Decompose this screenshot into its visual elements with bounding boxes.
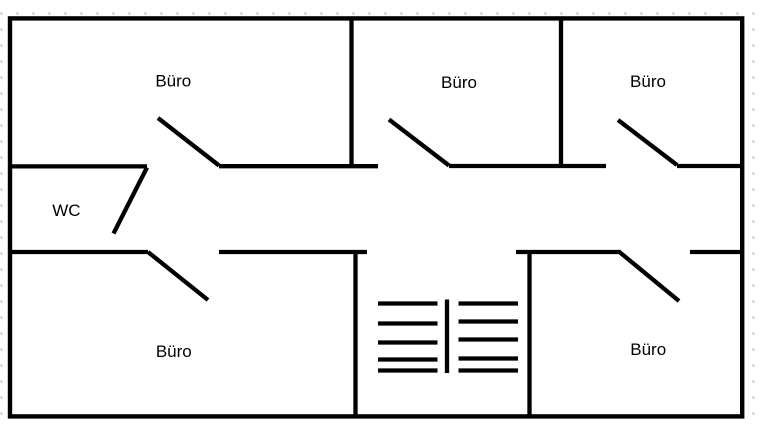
svg-text:Büro: Büro xyxy=(630,340,666,359)
svg-text:Büro: Büro xyxy=(155,72,191,91)
svg-text:Büro: Büro xyxy=(156,342,192,361)
svg-text:Büro: Büro xyxy=(441,73,477,92)
svg-text:WC: WC xyxy=(52,201,80,220)
svg-text:Büro: Büro xyxy=(630,72,666,91)
